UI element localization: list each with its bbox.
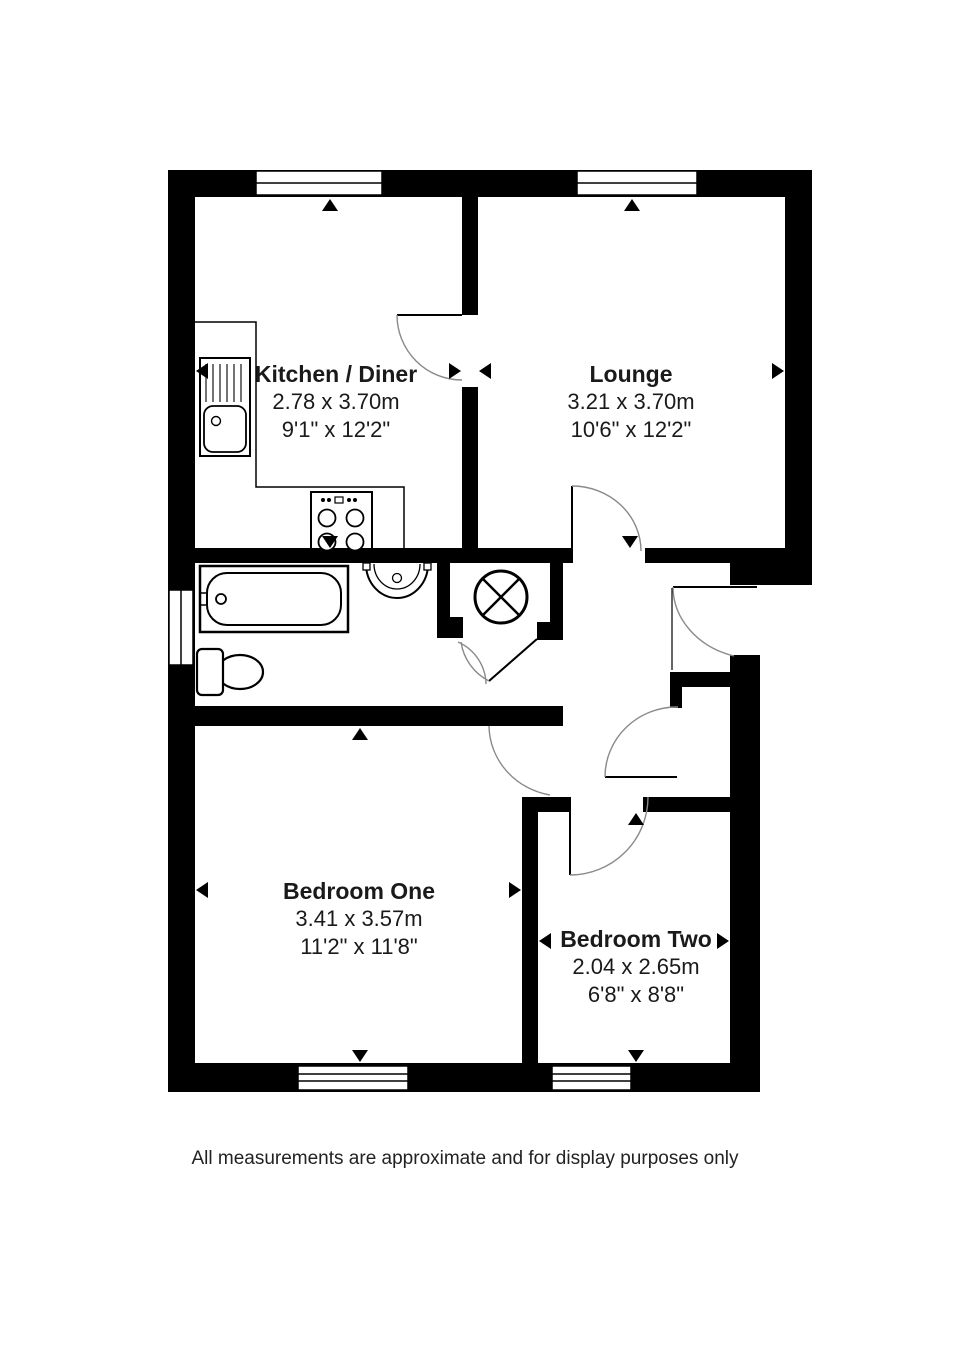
- dim-arrow-bedroom1-up: [352, 728, 368, 740]
- hot-water-cylinder-icon: [475, 571, 527, 623]
- disclaimer-text: All measurements are approximate and for…: [0, 1148, 930, 1170]
- hob-icon: [311, 492, 372, 551]
- wall-cupboard-right: [550, 563, 563, 622]
- floorplan: Kitchen / Diner 2.78 x 3.70m 9'1" x 12'2…: [0, 0, 980, 1359]
- room-size-metric: 2.04 x 2.65m: [536, 953, 736, 981]
- wall-mid-right: [645, 548, 785, 563]
- dim-arrow-lounge-left: [479, 363, 491, 379]
- room-name: Bedroom One: [219, 877, 499, 905]
- wall-bottom: [168, 1063, 760, 1092]
- dim-arrow-lounge-down: [622, 536, 638, 548]
- wall-right-lounge: [785, 197, 812, 585]
- wall-bedroom2-top-right: [643, 797, 733, 812]
- wall-kitchen-lounge-upper: [462, 197, 478, 315]
- wash-basin-icon: [363, 563, 431, 598]
- room-size-imperial: 6'8" x 8'8": [536, 981, 736, 1009]
- wall-hall-nook-foot: [670, 672, 682, 708]
- wall-bathroom-bedroom1: [168, 706, 563, 726]
- window-bedroom1: [298, 1066, 408, 1090]
- room-name: Kitchen / Diner: [196, 360, 476, 388]
- wall-cap-under-lounge: [730, 563, 812, 585]
- dim-arrow-bedroom1-down: [352, 1050, 368, 1062]
- dim-arrow-kitchen-down: [322, 536, 338, 548]
- bath-icon: [200, 566, 348, 632]
- dim-arrow-kitchen-up: [322, 199, 338, 211]
- door-arc-bedroom1: [489, 726, 550, 795]
- room-label-kitchen: Kitchen / Diner 2.78 x 3.70m 9'1" x 12'2…: [196, 360, 476, 444]
- dim-arrow-lounge-up: [624, 199, 640, 211]
- room-size-metric: 3.41 x 3.57m: [219, 905, 499, 933]
- dim-arrow-bedroom1-left: [196, 882, 208, 898]
- room-size-imperial: 9'1" x 12'2": [196, 416, 476, 444]
- dim-arrow-kitchen-left: [196, 363, 208, 379]
- room-name: Lounge: [491, 360, 771, 388]
- dim-arrow-bedroom2-down: [628, 1050, 644, 1062]
- toilet-icon: [197, 649, 263, 695]
- wall-bathroom-right: [437, 563, 450, 617]
- door-arc-bedroom2: [570, 797, 648, 875]
- dim-arrow-bedroom2-right: [717, 933, 729, 949]
- window-bedroom2: [552, 1066, 631, 1090]
- door-arc-entrance: [673, 587, 734, 656]
- dim-arrow-kitchen-right: [449, 363, 461, 379]
- room-size-imperial: 11'2" x 11'8": [219, 933, 499, 961]
- room-label-bedroom-one: Bedroom One 3.41 x 3.57m 11'2" x 11'8": [219, 877, 499, 961]
- wall-bedroom2-top-left: [522, 797, 570, 812]
- dim-arrow-lounge-right: [772, 363, 784, 379]
- room-size-metric: 2.78 x 3.70m: [196, 388, 476, 416]
- wall-cupboard-right-foot: [537, 622, 563, 640]
- room-label-bedroom-two: Bedroom Two 2.04 x 2.65m 6'8" x 8'8": [536, 925, 736, 1009]
- dim-arrow-bedroom1-right: [509, 882, 521, 898]
- room-name: Bedroom Two: [536, 925, 736, 953]
- door-arc-hall: [605, 707, 678, 777]
- room-size-imperial: 10'6" x 12'2": [491, 416, 771, 444]
- room-label-lounge: Lounge 3.21 x 3.70m 10'6" x 12'2": [491, 360, 771, 444]
- wall-mid-left: [195, 548, 573, 563]
- dim-arrow-bedroom2-left: [539, 933, 551, 949]
- wall-cupboard-left-foot: [437, 617, 463, 638]
- room-size-metric: 3.21 x 3.70m: [491, 388, 771, 416]
- door-leaf-cupboard: [489, 639, 537, 681]
- dim-arrow-bedroom2-up: [628, 813, 644, 825]
